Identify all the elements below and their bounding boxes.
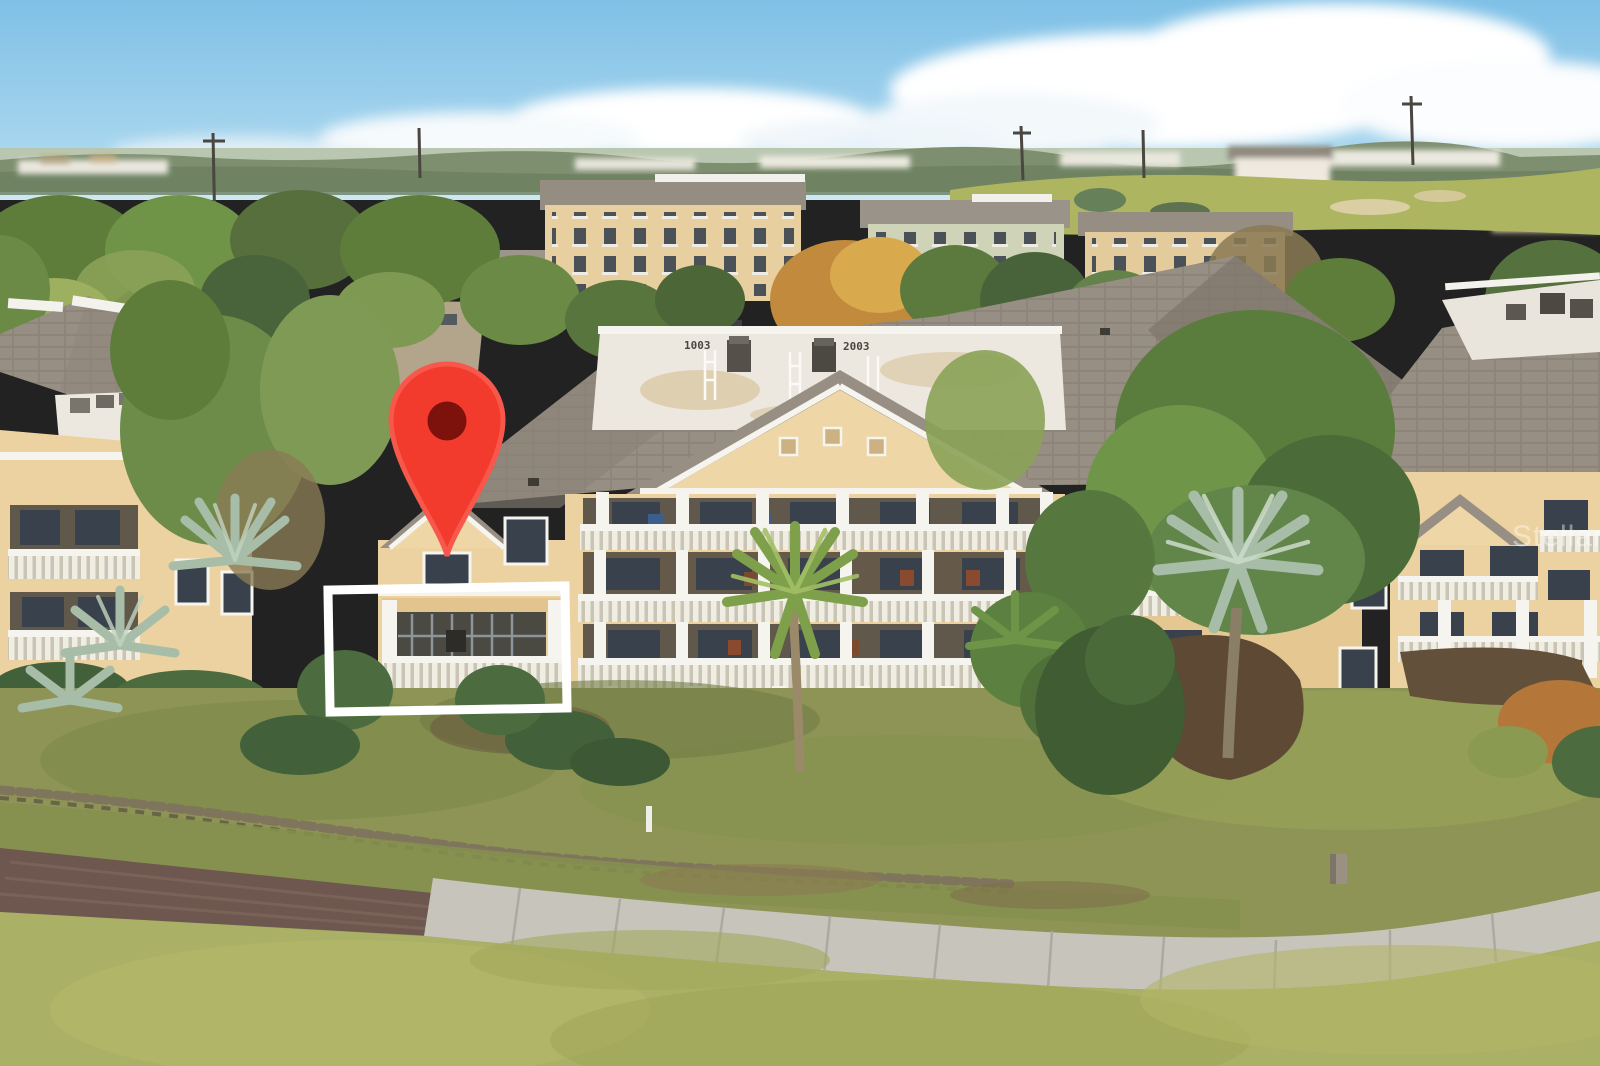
aerial-photo-canvas: 1003 2003 (0, 0, 1600, 1066)
listing-photo[interactable]: 1003 2003 (0, 0, 1600, 1066)
stellar-mls-watermark: StellarMLS (1512, 520, 1600, 553)
roof-number-right: 2003 (843, 340, 870, 353)
roof-number-left: 1003 (684, 339, 711, 352)
